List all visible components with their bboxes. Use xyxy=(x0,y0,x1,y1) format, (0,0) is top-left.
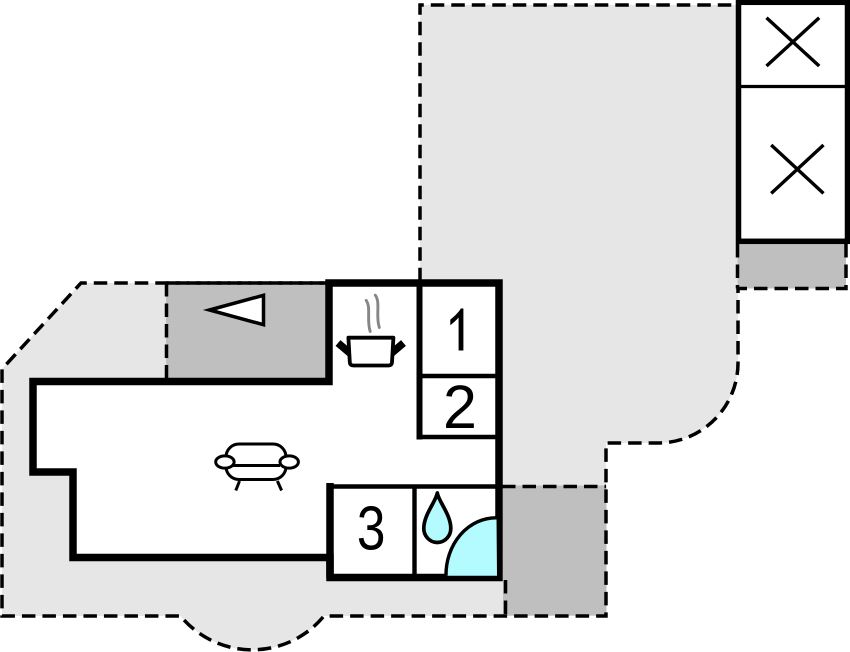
svg-text:2: 2 xyxy=(443,373,477,441)
svg-text:3: 3 xyxy=(357,494,386,564)
